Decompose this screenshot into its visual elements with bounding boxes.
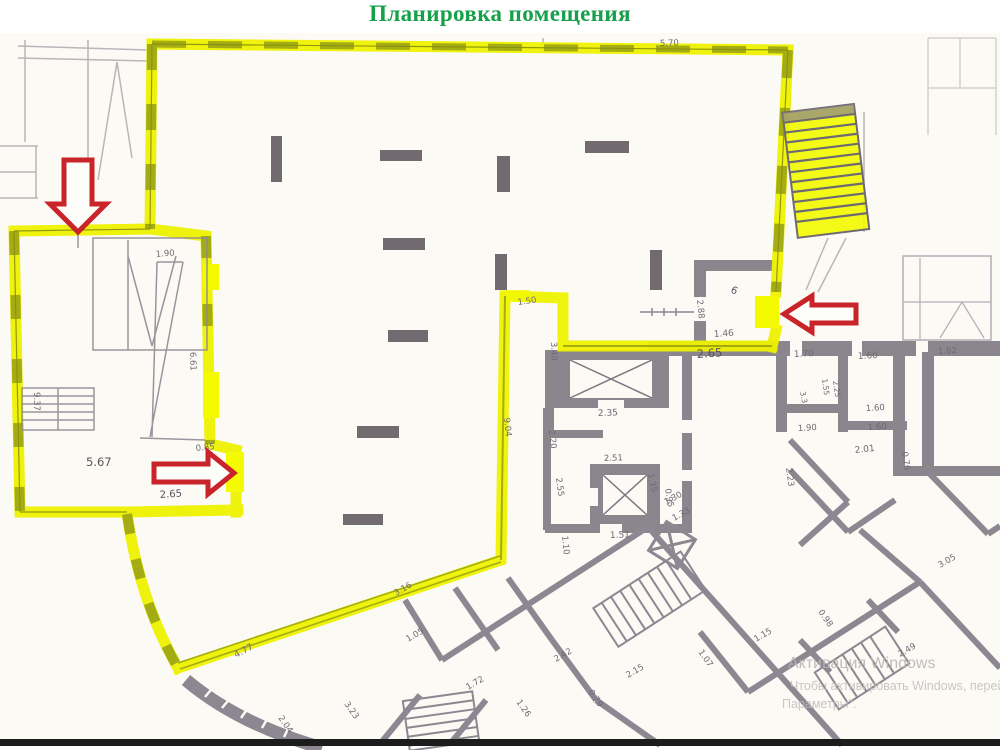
dim-label: 1.60 <box>868 422 887 433</box>
dim-label: 1.60 <box>858 351 879 362</box>
watermark-line1: Активация Windows <box>788 655 935 672</box>
scan-strip <box>0 739 1000 746</box>
dim-label: 9.37 <box>31 392 41 411</box>
dim-label: 9.04 <box>501 417 513 437</box>
dim-label: 1.51 <box>610 530 630 541</box>
dim-label: 2.65 <box>696 345 723 361</box>
page-title: Планировка помещения <box>0 1 1000 27</box>
dim-label: 1.10 <box>559 535 571 555</box>
dim-label: 1.90 <box>798 423 817 434</box>
floor-plan: 5.70 5.67 2.65 0.85 9.37 1.90 6.61 1.50 … <box>0 0 1000 750</box>
dim-label: 2.88 <box>694 299 706 319</box>
staircase-top-right <box>782 104 869 238</box>
watermark-line2: Чтобы активировать Windows, перейдите <box>790 679 1000 693</box>
dim-label: 2.01 <box>854 444 875 456</box>
dim-label: 1.62 <box>938 346 957 357</box>
dim-label: 5.67 <box>86 455 112 469</box>
dim-label: 2.35 <box>598 408 618 419</box>
dim-label: 6.61 <box>187 352 198 371</box>
dim-label: 1.60 <box>866 403 885 414</box>
dim-label: 2.65 <box>159 488 182 501</box>
dim-label: 2.51 <box>604 453 623 464</box>
elevator-1 <box>553 350 669 408</box>
dim-label: 1.70 <box>794 349 815 360</box>
dim-label: 1.46 <box>714 329 735 340</box>
dim-label: 2.20 <box>546 429 558 449</box>
dim-label: 5.70 <box>660 38 679 49</box>
dim-label: 3.40 <box>548 342 559 361</box>
dim-label: 1.90 <box>155 248 175 260</box>
watermark-line3: Параметры". <box>782 697 857 711</box>
